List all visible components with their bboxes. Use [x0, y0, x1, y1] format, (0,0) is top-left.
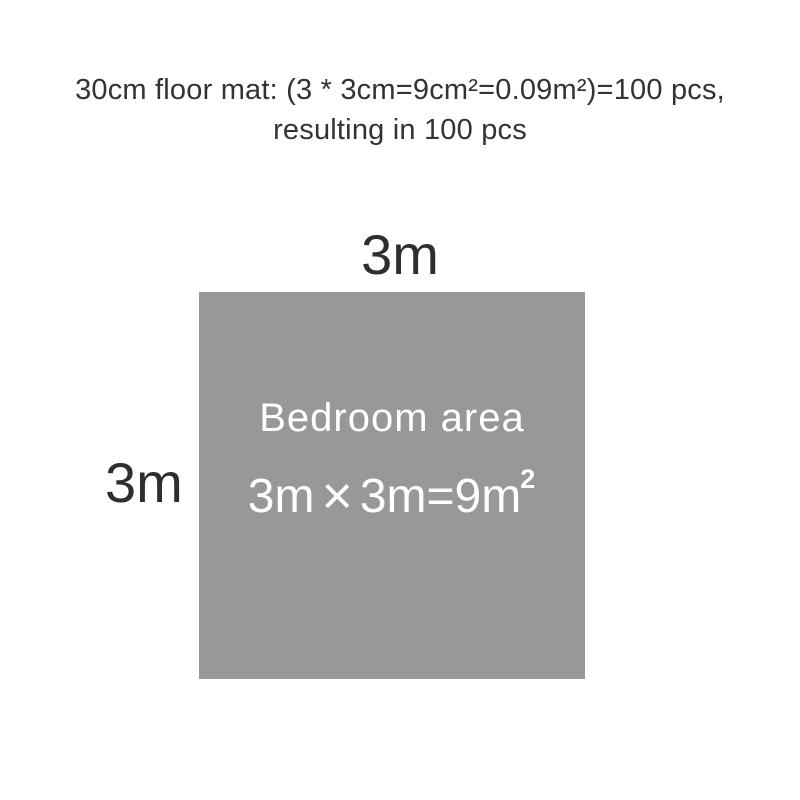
top-dimension-label: 3m — [0, 227, 800, 283]
area-formula: 3m×3m=9m2 — [199, 470, 585, 524]
left-dimension-label: 3m — [105, 455, 175, 511]
caption: 30cm floor mat: (3 * 3cm=9cm²=0.09m²)=10… — [0, 70, 800, 150]
formula-exponent: 2 — [520, 466, 535, 493]
area-name-label: Bedroom area — [199, 398, 585, 438]
caption-line-1: 30cm floor mat: (3 * 3cm=9cm²=0.09m²)=10… — [0, 70, 800, 110]
multiplication-sign: × — [321, 466, 352, 526]
formula-left-operand: 3m — [248, 470, 315, 523]
caption-line-2: resulting in 100 pcs — [0, 110, 800, 150]
bedroom-area-square: Bedroom area 3m×3m=9m2 — [199, 292, 585, 679]
diagram-canvas: 30cm floor mat: (3 * 3cm=9cm²=0.09m²)=10… — [0, 0, 800, 800]
formula-right-part: 3m=9m — [360, 470, 521, 523]
